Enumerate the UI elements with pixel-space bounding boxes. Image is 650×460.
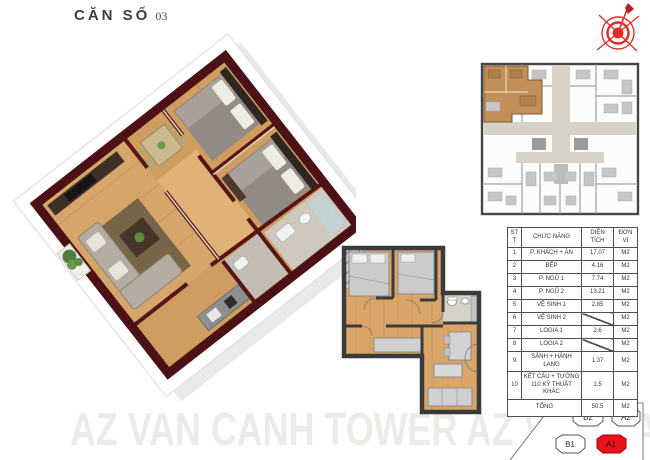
cell-stt: 3 [508, 274, 522, 287]
apartment-number: 03 [155, 9, 167, 23]
cell-stt: 8 [508, 339, 522, 352]
cell-stt: 7 [508, 326, 522, 339]
cell-unit: M2 [614, 248, 638, 261]
apartment-3d-group [14, 31, 356, 407]
cell-area: 17.07 [582, 248, 614, 261]
cell-stt: 9 [508, 352, 522, 372]
table-row: 4P. NGỦ 213.21M2 [508, 287, 638, 300]
cell-area: 7.74 [582, 274, 614, 287]
unit-label-b1: B1 [565, 440, 575, 449]
table-row: 1P. KHÁCH + ĂN17.07M2 [508, 248, 638, 261]
table-row: 8LOGIA 2M2 [508, 339, 638, 352]
cell-stt: 2 [508, 261, 522, 274]
apartment-title: CĂN SỐ [74, 7, 150, 24]
total-unit: M2 [614, 399, 638, 416]
cell-unit: M2 [614, 352, 638, 372]
table-total-row: TỔNG 50.5 M2 [508, 399, 638, 416]
table-row: 6VỆ SINH 2M2 [508, 313, 638, 326]
unit-label-a1: A1 [606, 440, 616, 449]
cell-unit: M2 [614, 339, 638, 352]
cell-area: 1.5 [582, 372, 614, 400]
table-row: 2BẾP4.16M2 [508, 261, 638, 274]
cell-name: P. NGỦ 1 [522, 274, 582, 287]
table-row: 7LOGIA 12.6M2 [508, 326, 638, 339]
cell-unit: M2 [614, 287, 638, 300]
table-row: 5VỆ SINH 12.85M2 [508, 300, 638, 313]
header-dien-tich: DIỆN TÍCH [582, 228, 614, 248]
cell-name: VỆ SINH 1 [522, 300, 582, 313]
unit-option-a1-active[interactable]: A1 [597, 435, 626, 453]
cell-area: 4.16 [582, 261, 614, 274]
cell-unit: M2 [614, 261, 638, 274]
cell-stt: 5 [508, 300, 522, 313]
cell-area [582, 339, 614, 352]
header-stt: STT [508, 228, 522, 248]
cell-name: P. KHÁCH + ĂN [522, 248, 582, 261]
compass-icon [588, 0, 648, 58]
page: AZ VAN CANH TOWER AZ VAN CANH TO CĂN SỐ0… [0, 0, 650, 460]
area-table: STT CHỨC NĂNG DIỆN TÍCH ĐƠN VỊ 1P. KHÁCH… [507, 227, 638, 417]
cell-area: 1.37 [582, 352, 614, 372]
cell-area: 13.21 [582, 287, 614, 300]
total-label: TỔNG [508, 399, 582, 416]
cell-stt: 1 [508, 248, 522, 261]
cell-name: LOGIA 1 [522, 326, 582, 339]
cell-name: KẾT CẤU + TƯỜNG 110 KỸ THUẬT KHÁC [522, 372, 582, 400]
table-header-row: STT CHỨC NĂNG DIỆN TÍCH ĐƠN VỊ [508, 228, 638, 248]
cell-name: P. NGỦ 2 [522, 287, 582, 300]
cell-name: BẾP [522, 261, 582, 274]
cell-unit: M2 [614, 326, 638, 339]
table-row: 10KẾT CẤU + TƯỜNG 110 KỸ THUẬT KHÁC1.5M2 [508, 372, 638, 400]
kitchen-counter-2d [374, 338, 422, 352]
cell-stt: 10 [508, 372, 522, 400]
cell-name: SẢNH + HÀNH LANG [522, 352, 582, 372]
cell-unit: M2 [614, 300, 638, 313]
bed-2-2d [398, 252, 434, 294]
header-chuc-nang: CHỨC NĂNG [522, 228, 582, 248]
area-table-body: 1P. KHÁCH + ĂN17.07M22BẾP4.16M23P. NGỦ 1… [508, 248, 638, 400]
cell-area [582, 313, 614, 326]
area-table-wrap: STT CHỨC NĂNG DIỆN TÍCH ĐƠN VỊ 1P. KHÁCH… [507, 227, 637, 417]
cell-stt: 4 [508, 287, 522, 300]
page-title: CĂN SỐ03 [74, 7, 167, 25]
cell-stt: 6 [508, 313, 522, 326]
cell-area: 2.85 [582, 300, 614, 313]
table-row: 3P. NGỦ 17.74M2 [508, 274, 638, 287]
cell-name: LOGIA 2 [522, 339, 582, 352]
cell-name: VỆ SINH 2 [522, 313, 582, 326]
cell-unit: M2 [614, 313, 638, 326]
building-key-plan [476, 56, 644, 220]
header-don-vi: ĐƠN VỊ [614, 228, 638, 248]
bed-1-2d [349, 252, 389, 296]
cell-area: 2.6 [582, 326, 614, 339]
floor-plan-3d [4, 18, 356, 422]
table-row: 9SẢNH + HÀNH LANG1.37M2 [508, 352, 638, 372]
total-area: 50.5 [582, 399, 614, 416]
unit-option-b1[interactable]: B1 [556, 435, 585, 453]
cell-unit: M2 [614, 372, 638, 400]
floor-plan-2d [336, 236, 486, 420]
cell-unit: M2 [614, 274, 638, 287]
